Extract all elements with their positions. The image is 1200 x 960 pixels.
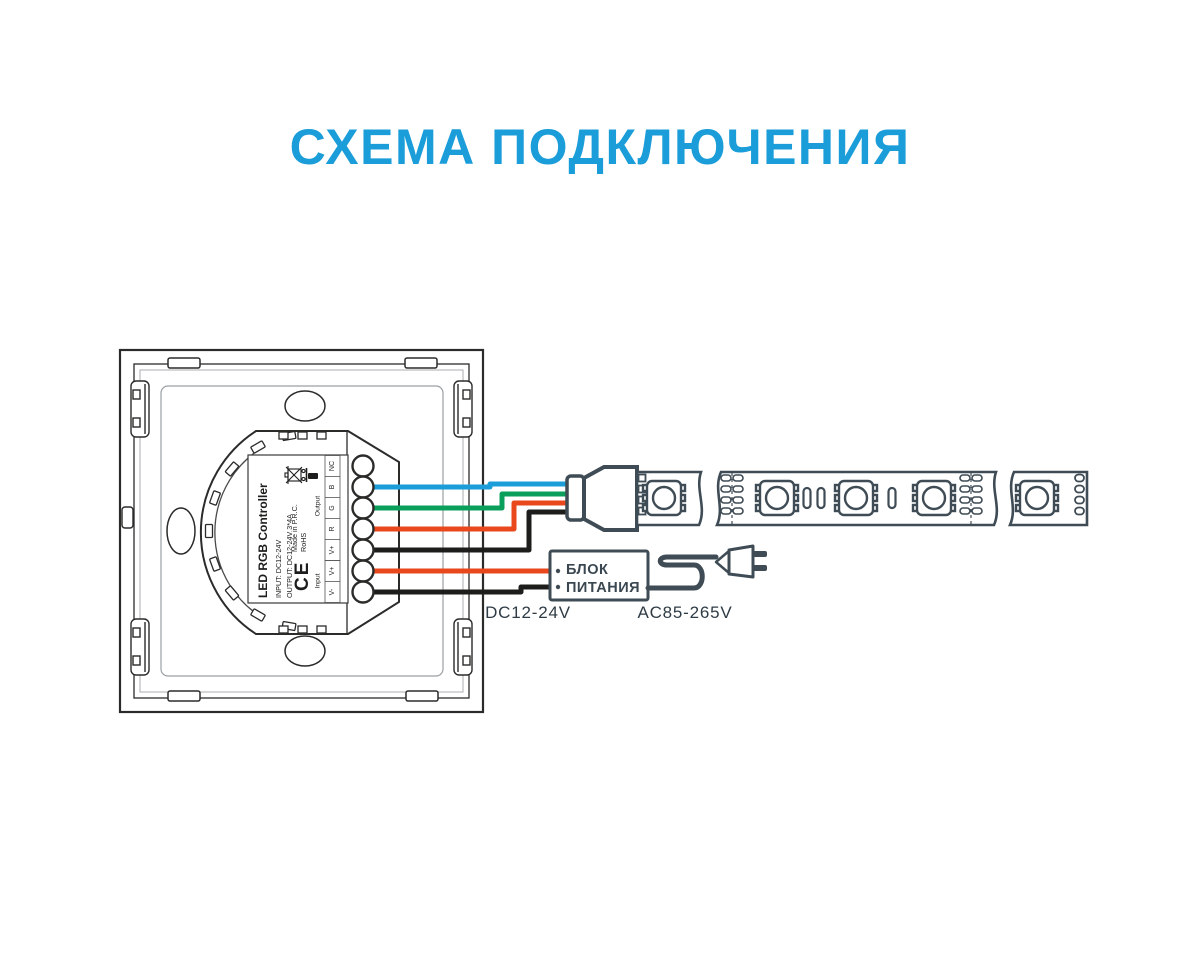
ac-plug: [648, 546, 767, 588]
psu-name-line2: ПИТАНИЯ: [566, 580, 640, 596]
plug-prong: [753, 565, 767, 571]
terminal-vplus-out: [353, 540, 374, 561]
terminal-vminus-in: [353, 582, 374, 603]
pin-vplus-out: V+: [329, 546, 336, 555]
pin-vplus-in: V+: [329, 567, 336, 576]
psu-dc-terminal-minus: [556, 585, 560, 589]
terminal-b: [353, 477, 374, 498]
terminal-r: [353, 519, 374, 540]
label-product-name: LED RGB Controller: [256, 483, 270, 598]
plug-body: [729, 546, 753, 577]
pin-g: G: [329, 505, 336, 510]
led-strip: [567, 467, 1087, 530]
led-chip: [756, 481, 798, 515]
plug-neck: [716, 551, 729, 573]
label-rohs: RoHS: [299, 533, 308, 552]
power-supply-unit: БЛОК ПИТАНИЯ: [550, 551, 648, 600]
terminal-vplus-in: [353, 561, 374, 582]
pin-vminus-in: V-: [329, 588, 336, 595]
pin-nc: NC: [329, 461, 336, 471]
ac-cable: [648, 557, 716, 588]
label-input-rating: INPUT: DC12-24V: [274, 539, 283, 598]
diagram-canvas: LED RGB Controller INPUT: DC12-24V OUTPU…: [0, 0, 1200, 960]
pin-b: B: [329, 484, 336, 489]
terminal-g: [353, 498, 374, 519]
psu-dc-terminal-plus: [556, 569, 560, 573]
led-chip: [643, 481, 685, 515]
led-chip: [913, 481, 955, 515]
dc-rating-label: DC12-24V: [485, 603, 571, 622]
plug-prong: [753, 551, 767, 557]
product-label: LED RGB Controller INPUT: DC12-24V OUTPU…: [248, 455, 348, 603]
connection-diagram-page: СХЕМА ПОДКЛЮЧЕНИЯ: [0, 0, 1200, 960]
led-chip: [835, 481, 877, 515]
psu-name-line1: БЛОК: [566, 562, 608, 578]
ac-rating-label: AC85-265V: [637, 603, 732, 622]
pin-r: R: [329, 526, 336, 531]
ce-mark: CE: [292, 561, 313, 591]
led-chip: [1016, 481, 1058, 515]
output-group-label: Output: [315, 496, 322, 517]
terminal-nc: [353, 456, 374, 477]
strip-connector: [567, 467, 637, 530]
input-group-label: Input: [315, 573, 322, 588]
label-bar-mark: [308, 473, 318, 479]
label-made-in: Made in P.R.C.: [290, 504, 299, 552]
